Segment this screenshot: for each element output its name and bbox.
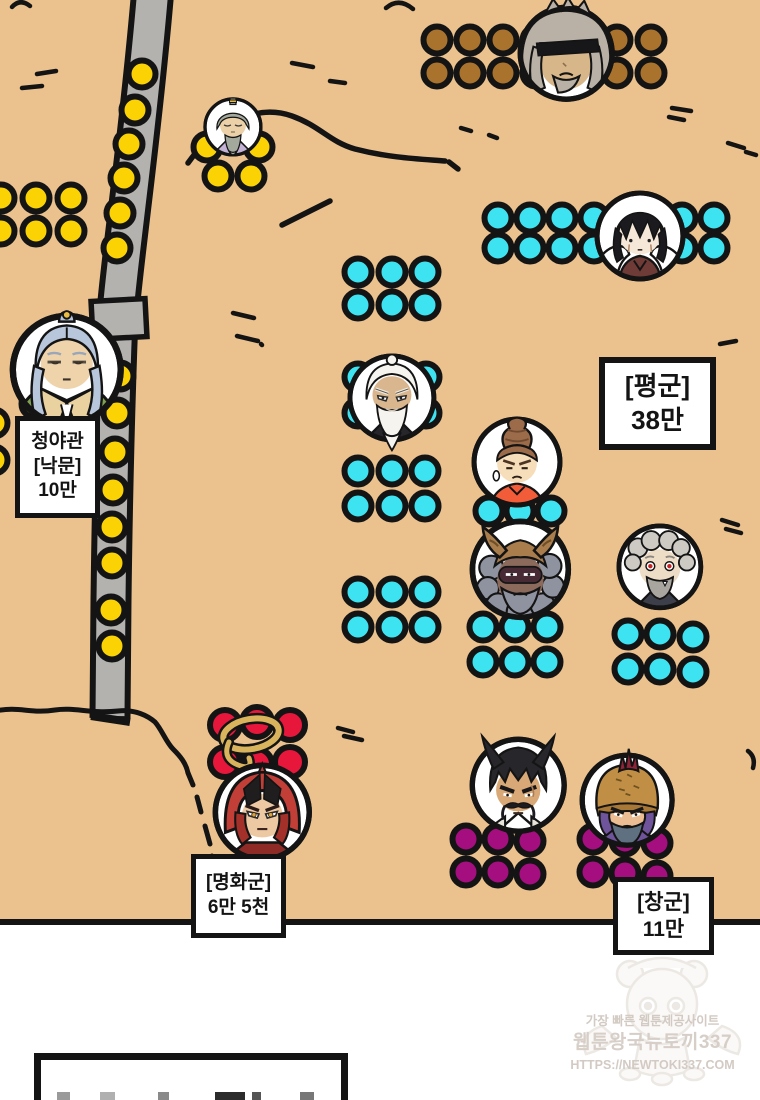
outpost-label-line1: 청야관	[20, 430, 95, 455]
portrait-blindfold-elder	[517, 4, 615, 102]
portrait-red-eyed-elder	[616, 523, 704, 611]
portrait-white-beard-elder	[347, 353, 437, 443]
watermark-url: HTTPS://NEWTOKI337.COM	[545, 1058, 760, 1072]
cutoff-text-fragment	[252, 1092, 261, 1100]
chang-army-count: 11만	[618, 916, 709, 943]
watermark-line1: 가장 빠른 웹툰제공사이트	[545, 1014, 760, 1028]
portrait-orange-robe-youth	[471, 416, 563, 508]
portrait-blue-haired-lord	[9, 312, 125, 428]
pyeong-army-name: [평군]	[605, 370, 710, 404]
outpost-label: 청야관 [낙문] 10만	[15, 416, 100, 518]
portrait-helmet-general	[579, 752, 675, 848]
watermark-line2: 웹툰왕국뉴토끼337	[545, 1032, 760, 1054]
pyeong-army-label: [평군] 38만	[599, 357, 716, 450]
portrait-elder-topknot	[203, 97, 263, 157]
chang-army-name: [창군]	[618, 889, 709, 916]
cutoff-text-fragment	[57, 1092, 70, 1100]
portrait-spiky-hair-general	[469, 736, 567, 834]
portrait-horned-demon	[469, 518, 572, 621]
cutoff-text-fragment	[300, 1092, 314, 1100]
webtoon-panel: 청야관 [낙문] 10만 [평군] 38만 [명화군] 6만 5천 [창군] 1…	[0, 0, 760, 1100]
cutoff-text-fragment	[100, 1092, 115, 1100]
outpost-label-line3: 10만	[20, 479, 95, 504]
pyeong-army-count: 38만	[605, 404, 710, 438]
cutoff-text-fragment	[215, 1092, 245, 1100]
chang-army-label: [창군] 11만	[613, 877, 714, 955]
portrait-dark-haired-youth	[594, 190, 686, 282]
cutoff-text-fragment	[158, 1092, 169, 1100]
myeonghwa-army-name: [명화군]	[196, 871, 281, 896]
myeonghwa-army-count: 6만 5천	[196, 896, 281, 921]
portrait-red-armor-warrior	[212, 762, 313, 863]
outpost-label-line2: [낙문]	[20, 455, 95, 480]
watermark: 가장 빠른 웹툰제공사이트 웹툰왕국뉴토끼337 HTTPS://NEWTOKI…	[545, 1014, 760, 1073]
myeonghwa-army-label: [명화군] 6만 5천	[191, 854, 286, 938]
